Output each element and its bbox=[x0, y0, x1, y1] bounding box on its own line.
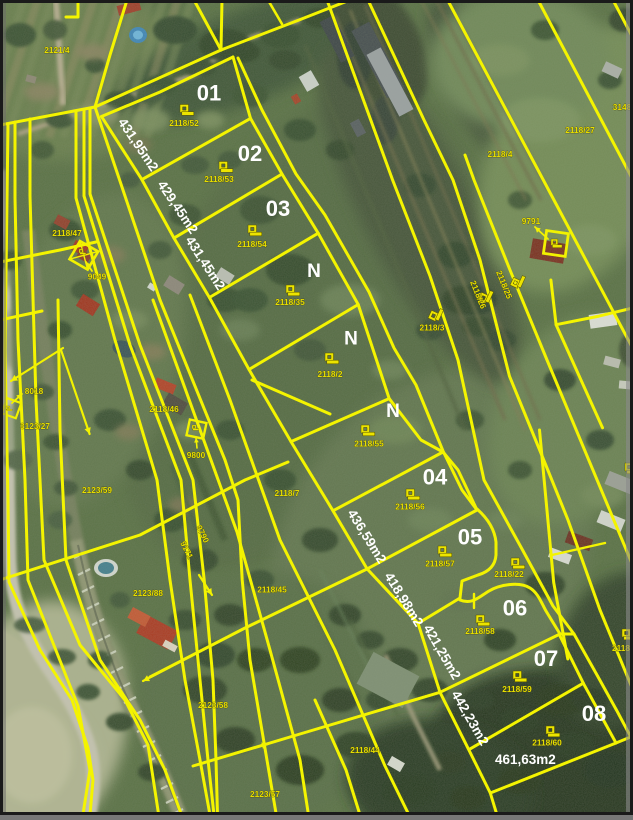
svg-text:2118/7: 2118/7 bbox=[275, 488, 300, 498]
svg-text:2118/46: 2118/46 bbox=[149, 404, 179, 414]
svg-text:2118/4: 2118/4 bbox=[488, 149, 513, 159]
svg-text:2118/60: 2118/60 bbox=[532, 738, 562, 748]
svg-text:461,63m2: 461,63m2 bbox=[495, 752, 556, 767]
svg-text:2123/88: 2123/88 bbox=[133, 588, 163, 598]
svg-text:2118/55: 2118/55 bbox=[354, 439, 384, 449]
svg-text:2123/57: 2123/57 bbox=[250, 789, 280, 799]
svg-text:N: N bbox=[344, 329, 358, 350]
svg-text:2118/27: 2118/27 bbox=[565, 125, 595, 135]
svg-text:2118/52: 2118/52 bbox=[169, 118, 199, 128]
svg-text:01: 01 bbox=[197, 81, 221, 106]
svg-text:N: N bbox=[307, 261, 321, 282]
svg-text:2118/44: 2118/44 bbox=[350, 745, 380, 755]
svg-text:2118/53: 2118/53 bbox=[204, 174, 234, 184]
svg-text:07: 07 bbox=[534, 646, 558, 671]
svg-text:2118/47: 2118/47 bbox=[52, 228, 82, 238]
svg-text:2118/45: 2118/45 bbox=[257, 585, 287, 595]
svg-text:08: 08 bbox=[582, 701, 606, 726]
svg-text:2118/59: 2118/59 bbox=[502, 684, 532, 694]
svg-text:9049: 9049 bbox=[88, 272, 107, 282]
svg-text:9791: 9791 bbox=[522, 216, 541, 226]
svg-text:06: 06 bbox=[503, 596, 527, 621]
svg-text:2118/58: 2118/58 bbox=[465, 626, 495, 636]
svg-text:02: 02 bbox=[238, 141, 262, 166]
svg-text:8018: 8018 bbox=[25, 386, 44, 396]
svg-text:05: 05 bbox=[458, 525, 482, 550]
svg-text:9800: 9800 bbox=[187, 450, 206, 460]
svg-text:3123/27: 3123/27 bbox=[20, 421, 50, 431]
svg-text:2123/58: 2123/58 bbox=[198, 700, 228, 710]
svg-text:N: N bbox=[386, 401, 400, 422]
svg-text:2118/57: 2118/57 bbox=[425, 559, 455, 569]
svg-text:2121/4: 2121/4 bbox=[44, 45, 70, 55]
svg-text:2118/56: 2118/56 bbox=[395, 502, 425, 512]
svg-text:04: 04 bbox=[423, 465, 448, 490]
svg-text:2123/59: 2123/59 bbox=[82, 485, 112, 495]
svg-text:2118/22: 2118/22 bbox=[494, 569, 524, 579]
svg-text:2118/35: 2118/35 bbox=[275, 297, 305, 307]
svg-text:03: 03 bbox=[266, 196, 290, 221]
svg-text:2118/54: 2118/54 bbox=[237, 239, 267, 249]
svg-text:2118/2: 2118/2 bbox=[318, 369, 343, 379]
svg-text:2118/3: 2118/3 bbox=[420, 323, 445, 333]
